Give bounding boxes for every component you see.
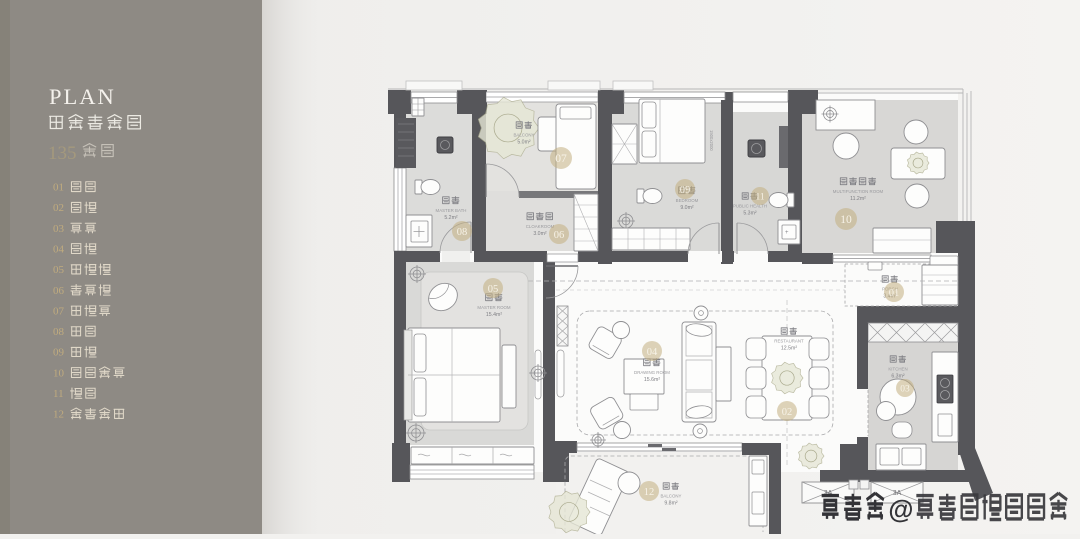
svg-text:PLAN: PLAN xyxy=(49,84,116,109)
svg-text:5.2m²: 5.2m² xyxy=(444,215,458,221)
svg-text:6.3m²: 6.3m² xyxy=(891,374,905,380)
svg-text:08: 08 xyxy=(457,227,468,238)
svg-text:02: 02 xyxy=(53,202,64,214)
svg-text:03: 03 xyxy=(900,384,910,394)
svg-text:04: 04 xyxy=(647,347,658,358)
svg-text:01: 01 xyxy=(889,288,900,299)
svg-text:08: 08 xyxy=(53,326,65,338)
svg-text:07: 07 xyxy=(555,153,567,165)
svg-text:12: 12 xyxy=(644,487,655,498)
svg-text:07: 07 xyxy=(53,305,65,317)
svg-text:MASTER BATH: MASTER BATH xyxy=(436,208,467,213)
svg-text:9.0m²: 9.0m² xyxy=(680,205,694,211)
svg-text:15.4m²: 15.4m² xyxy=(486,312,502,318)
svg-text:9.8m²: 9.8m² xyxy=(664,501,678,507)
svg-text:11.2m²: 11.2m² xyxy=(850,196,866,202)
svg-text:+: + xyxy=(785,230,789,236)
svg-text:10: 10 xyxy=(53,367,65,379)
svg-text:09: 09 xyxy=(53,347,65,359)
svg-text:5.3m²: 5.3m² xyxy=(743,211,757,217)
svg-text:11: 11 xyxy=(755,192,764,202)
svg-text:@: @ xyxy=(888,496,913,524)
svg-text:BALCONY: BALCONY xyxy=(661,494,682,499)
svg-text:RESTAURANT: RESTAURANT xyxy=(774,339,804,344)
svg-text:05: 05 xyxy=(53,264,65,276)
svg-text:03: 03 xyxy=(53,223,65,235)
svg-text:CLOAKROOM: CLOAKROOM xyxy=(526,224,555,229)
svg-text:KITCHEN: KITCHEN xyxy=(888,367,907,372)
svg-text:MULTIFUNCTION ROOM: MULTIFUNCTION ROOM xyxy=(833,189,884,194)
svg-text:DRAWING ROOM: DRAWING ROOM xyxy=(634,370,670,375)
svg-text:06: 06 xyxy=(554,230,565,241)
svg-text:09: 09 xyxy=(680,185,691,196)
svg-text:04: 04 xyxy=(53,243,65,255)
svg-text:1500x2000: 1500x2000 xyxy=(709,130,714,151)
svg-text:10: 10 xyxy=(840,214,852,226)
svg-text:3.0m²: 3.0m² xyxy=(533,231,547,237)
svg-text:12.5m²: 12.5m² xyxy=(781,346,797,352)
svg-text:BALCONY: BALCONY xyxy=(514,133,535,138)
svg-text:05: 05 xyxy=(488,284,499,295)
svg-text:MASTER ROOM: MASTER ROOM xyxy=(477,305,511,310)
svg-text:02: 02 xyxy=(782,407,793,418)
svg-text:06: 06 xyxy=(53,285,65,297)
svg-text:01: 01 xyxy=(53,182,64,194)
svg-text:11: 11 xyxy=(53,388,64,400)
svg-text:15.6m²: 15.6m² xyxy=(644,377,660,383)
svg-text:5.0m²: 5.0m² xyxy=(517,140,531,146)
svg-text:12: 12 xyxy=(53,409,64,421)
svg-text:135: 135 xyxy=(48,143,77,164)
